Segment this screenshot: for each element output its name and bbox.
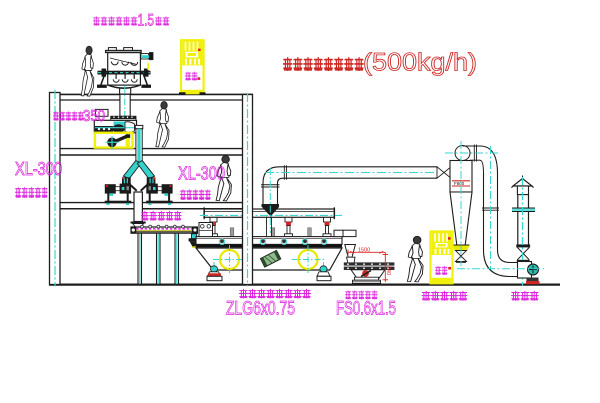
svg-text:240: 240 [385, 266, 391, 275]
svg-text:350: 350 [83, 108, 105, 125]
svg-text:1.5: 1.5 [138, 11, 155, 30]
svg-text:(500kg/h): (500kg/h) [363, 49, 477, 77]
svg-text:FS0.6x1.5: FS0.6x1.5 [336, 299, 396, 320]
svg-text:XL-300: XL-300 [178, 163, 225, 184]
svg-text:F600: F600 [454, 181, 465, 186]
svg-text:1500: 1500 [358, 247, 370, 253]
svg-text:XL-300: XL-300 [15, 158, 62, 179]
svg-text:ZLG6x0.75: ZLG6x0.75 [226, 299, 295, 320]
